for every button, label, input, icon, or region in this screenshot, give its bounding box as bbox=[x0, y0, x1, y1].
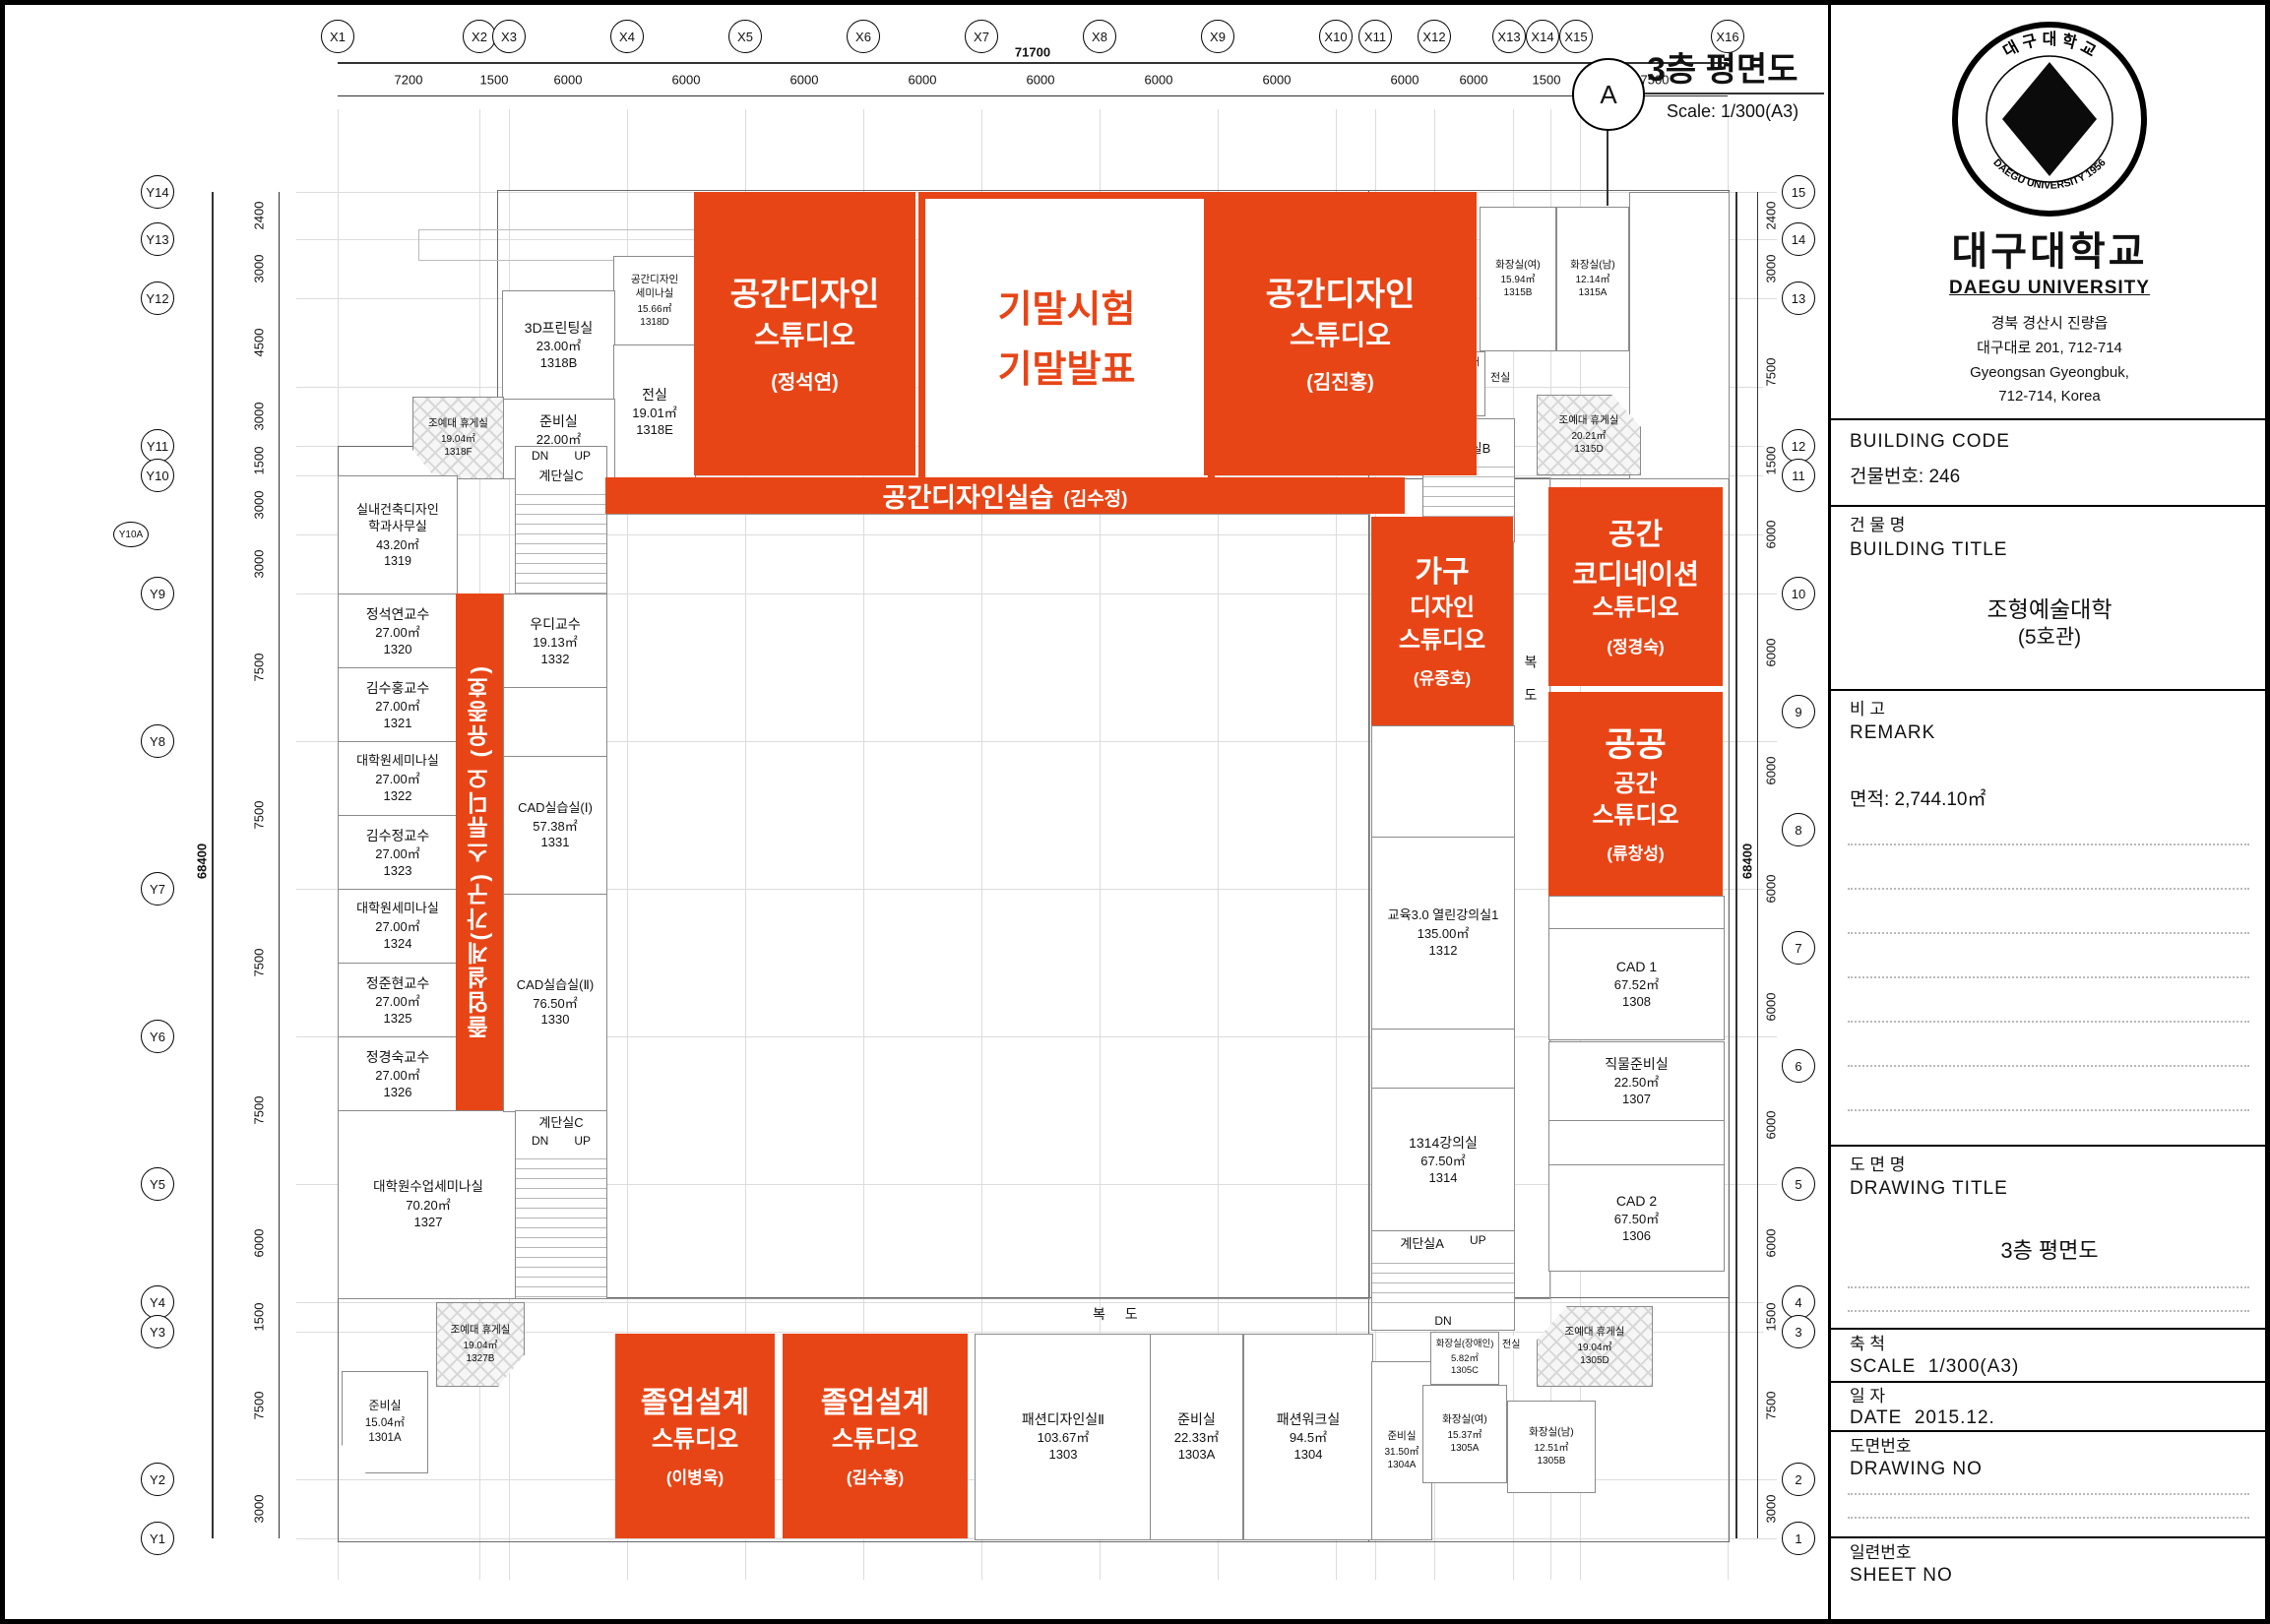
dim-yr-0: 2400 bbox=[1764, 200, 1779, 232]
section-mark-bubble: A bbox=[1572, 58, 1645, 131]
grid-bubble-y10: Y10 bbox=[141, 459, 174, 492]
grid-bubble-y8: Y8 bbox=[141, 724, 174, 758]
room-1315a-toilet-m: 화장실(남) 12.14㎡ 1315A bbox=[1556, 207, 1629, 351]
dim-yl-3: 3000 bbox=[252, 401, 267, 433]
dim-x-0: 7200 bbox=[393, 73, 425, 88]
grid-bubble-y10a: Y10A bbox=[113, 522, 149, 547]
remark-dotline-3 bbox=[1848, 932, 2249, 934]
room-1331: CAD실습실(Ⅰ) 57.38㎡ 1331 bbox=[503, 756, 607, 896]
grid-bubble-r15: 15 bbox=[1782, 175, 1815, 209]
remark-label-en: REMARK bbox=[1832, 721, 2267, 745]
room-blank-2 bbox=[1371, 725, 1515, 839]
stairwell-c-top: DN UP 계단실C bbox=[515, 446, 607, 595]
dim-line-x-total bbox=[338, 62, 1728, 64]
grid-bubble-x6: X6 bbox=[847, 20, 880, 53]
remark-dotline-2 bbox=[1848, 888, 2249, 890]
dim-yl-1: 3000 bbox=[252, 253, 267, 285]
grid-bubble-r4: 4 bbox=[1782, 1285, 1815, 1319]
university-address: 경북 경산시 진량읍 대구대로 201, 712-714 Gyeongsan G… bbox=[1832, 312, 2267, 409]
scale-row: SCALE 1/300(A3) bbox=[1832, 1355, 2267, 1379]
room-jeonsil-bottom-label: 전실 bbox=[1501, 1336, 1521, 1350]
grid-bubble-y4: Y4 bbox=[141, 1285, 174, 1319]
studio-graduation-furniture-vertical: 졸업설계(가구) 스튜디오 (유종호) bbox=[456, 593, 503, 1110]
dim-yl-9: 7500 bbox=[252, 947, 267, 979]
dim-yl-14: 3000 bbox=[252, 1493, 267, 1526]
sheet-no-label-en: SHEET NO bbox=[1832, 1564, 2267, 1588]
grid-bubble-r11: 11 bbox=[1782, 459, 1815, 492]
grid-bubble-r1: 1 bbox=[1782, 1522, 1815, 1555]
building-code-label: BUILDING CODE bbox=[1832, 430, 2267, 454]
dim-line-x-seg bbox=[338, 95, 1728, 96]
section-mark-line bbox=[1607, 127, 1608, 206]
remark-label-kr: 비 고 bbox=[1832, 699, 2267, 719]
dim-x-6: 6000 bbox=[1025, 73, 1057, 88]
dim-x-7: 6000 bbox=[1143, 73, 1175, 88]
studio-furniture-design: 가구 디자인 스튜디오 (유종호) bbox=[1371, 517, 1513, 725]
stair-c-bottom-updn: DN UP bbox=[532, 1132, 591, 1150]
room-1303a: 준비실 22.33㎡ 1303A bbox=[1150, 1334, 1243, 1540]
dim-yl-6: 3000 bbox=[252, 548, 267, 581]
corridor-label-right: 복 도 bbox=[1521, 655, 1541, 710]
room-1307: 직물준비실 22.50㎡ 1307 bbox=[1548, 1041, 1725, 1122]
grid-bubble-x10: X10 bbox=[1319, 20, 1353, 53]
university-seal-icon: 대 구 대 학 교 DAEGU UNIVERSITY 1956 bbox=[1951, 21, 2148, 218]
room-blank-4 bbox=[1548, 896, 1725, 930]
grid-bubble-r14: 14 bbox=[1782, 222, 1815, 256]
drawing-title-label-kr: 도 면 명 bbox=[1832, 1155, 2267, 1175]
grid-bubble-y14: Y14 bbox=[141, 175, 174, 209]
dim-x-8: 6000 bbox=[1261, 73, 1293, 88]
room-1325: 정준현교수 27.00㎡ 1325 bbox=[338, 963, 458, 1038]
grid-bubble-r13: 13 bbox=[1782, 281, 1815, 315]
room-1305a-toilet-w: 화장실(여) 15.37㎡ 1305A bbox=[1422, 1385, 1507, 1483]
grid-bubble-x7: X7 bbox=[965, 20, 998, 53]
dwg-dotline-1 bbox=[1848, 1493, 2249, 1495]
grid-bubble-y5: Y5 bbox=[141, 1167, 174, 1201]
building-title-value-2: (5호관) bbox=[1832, 625, 2267, 651]
final-exam-room: 기말시험 기말발표 bbox=[918, 192, 1215, 489]
grid-bubble-r6: 6 bbox=[1782, 1049, 1815, 1083]
panel-rule-7 bbox=[1831, 1430, 2270, 1432]
dim-line-yl-total bbox=[212, 192, 214, 1538]
dim-x-4: 6000 bbox=[788, 73, 821, 88]
wall-right-corridor bbox=[1513, 477, 1550, 1299]
room-blank-5 bbox=[1548, 1120, 1725, 1166]
room-1318b: 3D프린팅실 23.00㎡ 1318B bbox=[502, 290, 615, 401]
grid-bubble-y6: Y6 bbox=[141, 1020, 174, 1053]
grid-bubble-r12: 12 bbox=[1782, 429, 1815, 463]
dim-line-yr-seg bbox=[1757, 192, 1758, 1538]
studio-space-coordination: 공간 코디네이션 스튜디오 (정경숙) bbox=[1548, 487, 1723, 686]
room-1312: 교육3.0 열린강의실1 135.00㎡ 1312 bbox=[1371, 837, 1515, 1031]
grid-bubble-y7: Y7 bbox=[141, 872, 174, 906]
grid-bubble-r7: 7 bbox=[1782, 931, 1815, 965]
dim-yl-2: 4500 bbox=[252, 327, 267, 359]
room-1308: CAD 1 67.52㎡ 1308 bbox=[1548, 928, 1725, 1040]
dim-x-11: 1500 bbox=[1531, 73, 1563, 88]
university-name-en: DAEGU UNIVERSITY bbox=[1832, 277, 2267, 300]
dim-yl-0: 2400 bbox=[252, 200, 267, 232]
dim-yr-9: 6000 bbox=[1764, 1109, 1779, 1142]
stairwell-c-bottom: 계단실C DN UP bbox=[515, 1110, 607, 1299]
dim-yl-4: 1500 bbox=[252, 445, 267, 477]
studio-space-design-jeongseokyeon: 공간디자인 스튜디오 (정석연) bbox=[694, 192, 915, 475]
room-1323: 김수정교수 27.00㎡ 1323 bbox=[338, 815, 458, 891]
grid-bubble-x4: X4 bbox=[610, 20, 644, 53]
dim-x-10: 6000 bbox=[1458, 73, 1490, 88]
panel-rule-6 bbox=[1831, 1381, 2270, 1383]
building-title-label-kr: 건 물 명 bbox=[1832, 515, 2267, 535]
grid-bubble-r8: 8 bbox=[1782, 813, 1815, 846]
dim-yr-13: 3000 bbox=[1764, 1493, 1779, 1526]
stair-c-bottom-steps bbox=[516, 1150, 606, 1298]
room-1304: 패션워크실 94.5㎡ 1304 bbox=[1243, 1334, 1373, 1540]
remark-dotline-7 bbox=[1848, 1109, 2249, 1111]
room-1303: 패션디자인실Ⅱ 103.67㎡ 1303 bbox=[975, 1334, 1152, 1540]
dim-yr-11: 1500 bbox=[1764, 1301, 1779, 1334]
dim-yl-total: 68400 bbox=[195, 842, 210, 881]
remark-dotline-5 bbox=[1848, 1021, 2249, 1023]
grid-bubble-x15: X15 bbox=[1559, 20, 1593, 53]
drawing-title-value: 3층 평면도 bbox=[1832, 1237, 2267, 1265]
stair-a-updn: 계단실A UP bbox=[1400, 1231, 1485, 1254]
dim-yr-8: 6000 bbox=[1764, 991, 1779, 1024]
dim-x-1: 1500 bbox=[478, 73, 511, 88]
grid-bubble-r3: 3 bbox=[1782, 1315, 1815, 1348]
stair-a-dn: DN bbox=[1434, 1312, 1451, 1330]
room-1332: 우디교수 19.13㎡ 1332 bbox=[503, 593, 607, 689]
dim-yr-12: 7500 bbox=[1764, 1390, 1779, 1422]
dim-yr-6: 6000 bbox=[1764, 755, 1779, 787]
dim-yl-5: 3000 bbox=[252, 489, 267, 522]
dim-yr-total: 68400 bbox=[1740, 842, 1755, 881]
grid-bubble-y12: Y12 bbox=[141, 281, 174, 315]
drawing-title-label-en: DRAWING TITLE bbox=[1832, 1177, 2267, 1201]
room-1314: 1314강의실 67.50㎡ 1314 bbox=[1371, 1088, 1515, 1232]
dwg-dotline-2 bbox=[1848, 1517, 2249, 1519]
room-1318e: 전실 19.01㎡ 1318E bbox=[613, 344, 696, 479]
dim-x-5: 6000 bbox=[907, 73, 939, 88]
remark-dotline-6 bbox=[1848, 1065, 2249, 1067]
grid-bubble-r9: 9 bbox=[1782, 695, 1815, 728]
title-dotline-1 bbox=[1848, 1286, 2249, 1288]
grid-bubble-r10: 10 bbox=[1782, 577, 1815, 610]
studio-space-design-practice-bar: 공간디자인실습 (김수정) bbox=[605, 477, 1405, 514]
dim-line-yr-total bbox=[1735, 192, 1737, 1538]
grid-bubble-r5: 5 bbox=[1782, 1167, 1815, 1201]
dim-x-2: 6000 bbox=[552, 73, 585, 88]
date-row: DATE 2015.12. bbox=[1832, 1406, 2267, 1430]
area-value: 면적: 2,744.10㎡ bbox=[1832, 788, 2267, 812]
room-1327: 대학원수업세미나실 70.20㎡ 1327 bbox=[338, 1110, 519, 1299]
scale-label-kr: 축 척 bbox=[1832, 1334, 2267, 1354]
dim-x-3: 6000 bbox=[670, 73, 703, 88]
grid-bubble-x11: X11 bbox=[1358, 20, 1392, 53]
panel-rule-3 bbox=[1831, 689, 2270, 691]
room-1315b-toilet-w: 화장실(여) 15.94㎡ 1315B bbox=[1480, 207, 1556, 351]
room-1305c-toilet-acc: 화장실(장애인) 5.82㎡ 1305C bbox=[1430, 1332, 1499, 1385]
dim-x-total: 71700 bbox=[1013, 45, 1052, 60]
grid-bubble-y2: Y2 bbox=[141, 1463, 174, 1496]
drawing-no-label-kr: 도면번호 bbox=[1832, 1436, 2267, 1457]
remark-dotline-4 bbox=[1848, 976, 2249, 978]
room-1305b-toilet-m: 화장실(남) 12.51㎡ 1305B bbox=[1507, 1401, 1596, 1493]
room-1319: 실내건축디자인 학과사무실 43.20㎡ 1319 bbox=[338, 475, 458, 595]
grid-bubble-x5: X5 bbox=[728, 20, 762, 53]
dim-yr-7: 6000 bbox=[1764, 873, 1779, 906]
building-code-value: 건물번호: 246 bbox=[1832, 466, 2267, 489]
dim-yr-2: 7500 bbox=[1764, 356, 1779, 389]
grid-bubble-y11: Y11 bbox=[141, 429, 174, 463]
room-1301a: 준비실 15.04㎡ 1301A bbox=[342, 1371, 428, 1473]
room-jeonsil-top-label: 전실 bbox=[1489, 369, 1511, 385]
grid-bubble-x9: X9 bbox=[1201, 20, 1234, 53]
drawing-sheet: X1 X2 X3 X4 X5 X6 X7 X8 X9 X10 X11 X12 X… bbox=[0, 0, 2270, 1624]
remark-dotline-1 bbox=[1848, 843, 2249, 845]
room-1321: 김수홍교수 27.00㎡ 1321 bbox=[338, 667, 458, 743]
grid-bubble-x14: X14 bbox=[1526, 20, 1559, 53]
stair-c-bottom-label: 계단실C bbox=[538, 1111, 583, 1132]
building-title-value-1: 조형예술대학 bbox=[1832, 595, 2267, 624]
room-1322: 대학원세미나실 27.00㎡ 1322 bbox=[338, 741, 458, 817]
dim-yl-8: 7500 bbox=[252, 799, 267, 832]
drawing-no-label-en: DRAWING NO bbox=[1832, 1458, 2267, 1481]
grid-bubble-y3: Y3 bbox=[141, 1315, 174, 1348]
grid-bubble-y1: Y1 bbox=[141, 1522, 174, 1555]
room-blank-3 bbox=[1371, 1029, 1515, 1090]
dim-yr-1: 3000 bbox=[1764, 253, 1779, 285]
wall-courtyard bbox=[605, 514, 1370, 1299]
grid-bubble-x12: X12 bbox=[1418, 20, 1451, 53]
room-blank-1 bbox=[503, 687, 607, 758]
university-seal-logo: 대 구 대 학 교 DAEGU UNIVERSITY 1956 bbox=[1832, 21, 2267, 223]
grid-bubble-r2: 2 bbox=[1782, 1463, 1815, 1496]
dim-yr-3: 1500 bbox=[1764, 445, 1779, 477]
room-1324: 대학원세미나실 27.00㎡ 1324 bbox=[338, 889, 458, 965]
panel-rule-4 bbox=[1831, 1145, 2270, 1147]
dim-yr-5: 6000 bbox=[1764, 637, 1779, 669]
grid-bubble-x1: X1 bbox=[321, 20, 354, 53]
dim-yl-12: 1500 bbox=[252, 1301, 267, 1334]
university-name-kr: 대구대학교 bbox=[1832, 227, 2267, 277]
panel-rule-2 bbox=[1831, 505, 2270, 507]
room-top-right-corner bbox=[1629, 192, 1730, 479]
dim-yl-13: 7500 bbox=[252, 1390, 267, 1422]
room-1330: CAD실습실(Ⅱ) 76.50㎡ 1330 bbox=[503, 894, 607, 1112]
room-1318d: 공간디자인 세미나실 15.66㎡ 1318D bbox=[613, 256, 696, 346]
stair-a-steps bbox=[1372, 1254, 1514, 1312]
panel-rule-5 bbox=[1831, 1328, 2270, 1330]
title-dotline-2 bbox=[1848, 1310, 2249, 1312]
stair-c-top-label: 계단실C bbox=[538, 465, 583, 485]
grid-bubble-x8: X8 bbox=[1083, 20, 1116, 53]
dim-x-9: 6000 bbox=[1389, 73, 1421, 88]
stair-c-top-updn: DN UP bbox=[532, 447, 591, 465]
dim-yr-4: 6000 bbox=[1764, 519, 1779, 551]
dim-yl-10: 7500 bbox=[252, 1094, 267, 1127]
dim-line-yl-seg bbox=[279, 192, 280, 1538]
date-label-kr: 일 자 bbox=[1832, 1386, 2267, 1406]
room-1320: 정석연교수 27.00㎡ 1320 bbox=[338, 593, 458, 669]
studio-public-space: 공공 공간 스튜디오 (류창성) bbox=[1548, 692, 1723, 896]
grid-bubble-y9: Y9 bbox=[141, 577, 174, 610]
studio-graduation-kimsuhong: 졸업설계 스튜디오 (김수홍) bbox=[783, 1334, 968, 1538]
plan-scale-label: Scale: 1/300(A3) bbox=[1667, 101, 1798, 122]
grid-bubble-x13: X13 bbox=[1492, 20, 1526, 53]
grid-bubble-y13: Y13 bbox=[141, 222, 174, 256]
studio-graduation-leebyeonguk: 졸업설계 스튜디오 (이병욱) bbox=[615, 1334, 775, 1538]
dim-yr-10: 6000 bbox=[1764, 1227, 1779, 1260]
studio-space-design-kimjinhong: 공간디자인 스튜디오 (김진홍) bbox=[1204, 192, 1477, 475]
plan-title: 3층 평면도 bbox=[1647, 42, 1797, 91]
sheet-no-label-kr: 일련번호 bbox=[1832, 1542, 2267, 1563]
panel-rule-1 bbox=[1831, 418, 2270, 420]
dim-yl-7: 7500 bbox=[252, 652, 267, 684]
stairwell-a: 계단실A UP DN bbox=[1371, 1230, 1515, 1331]
dim-yl-11: 6000 bbox=[252, 1227, 267, 1260]
grid-bubble-x2: X2 bbox=[463, 20, 496, 53]
stair-c-top-steps bbox=[516, 485, 606, 594]
panel-rule-8 bbox=[1831, 1536, 2270, 1538]
room-1326: 정경숙교수 27.00㎡ 1326 bbox=[338, 1036, 458, 1112]
grid-bubble-x3: X3 bbox=[492, 20, 526, 53]
building-title-label-en: BUILDING TITLE bbox=[1832, 538, 2267, 562]
corridor-label-bottom: 복 도 bbox=[1093, 1304, 1146, 1324]
room-1306: CAD 2 67.50㎡ 1306 bbox=[1548, 1164, 1725, 1272]
